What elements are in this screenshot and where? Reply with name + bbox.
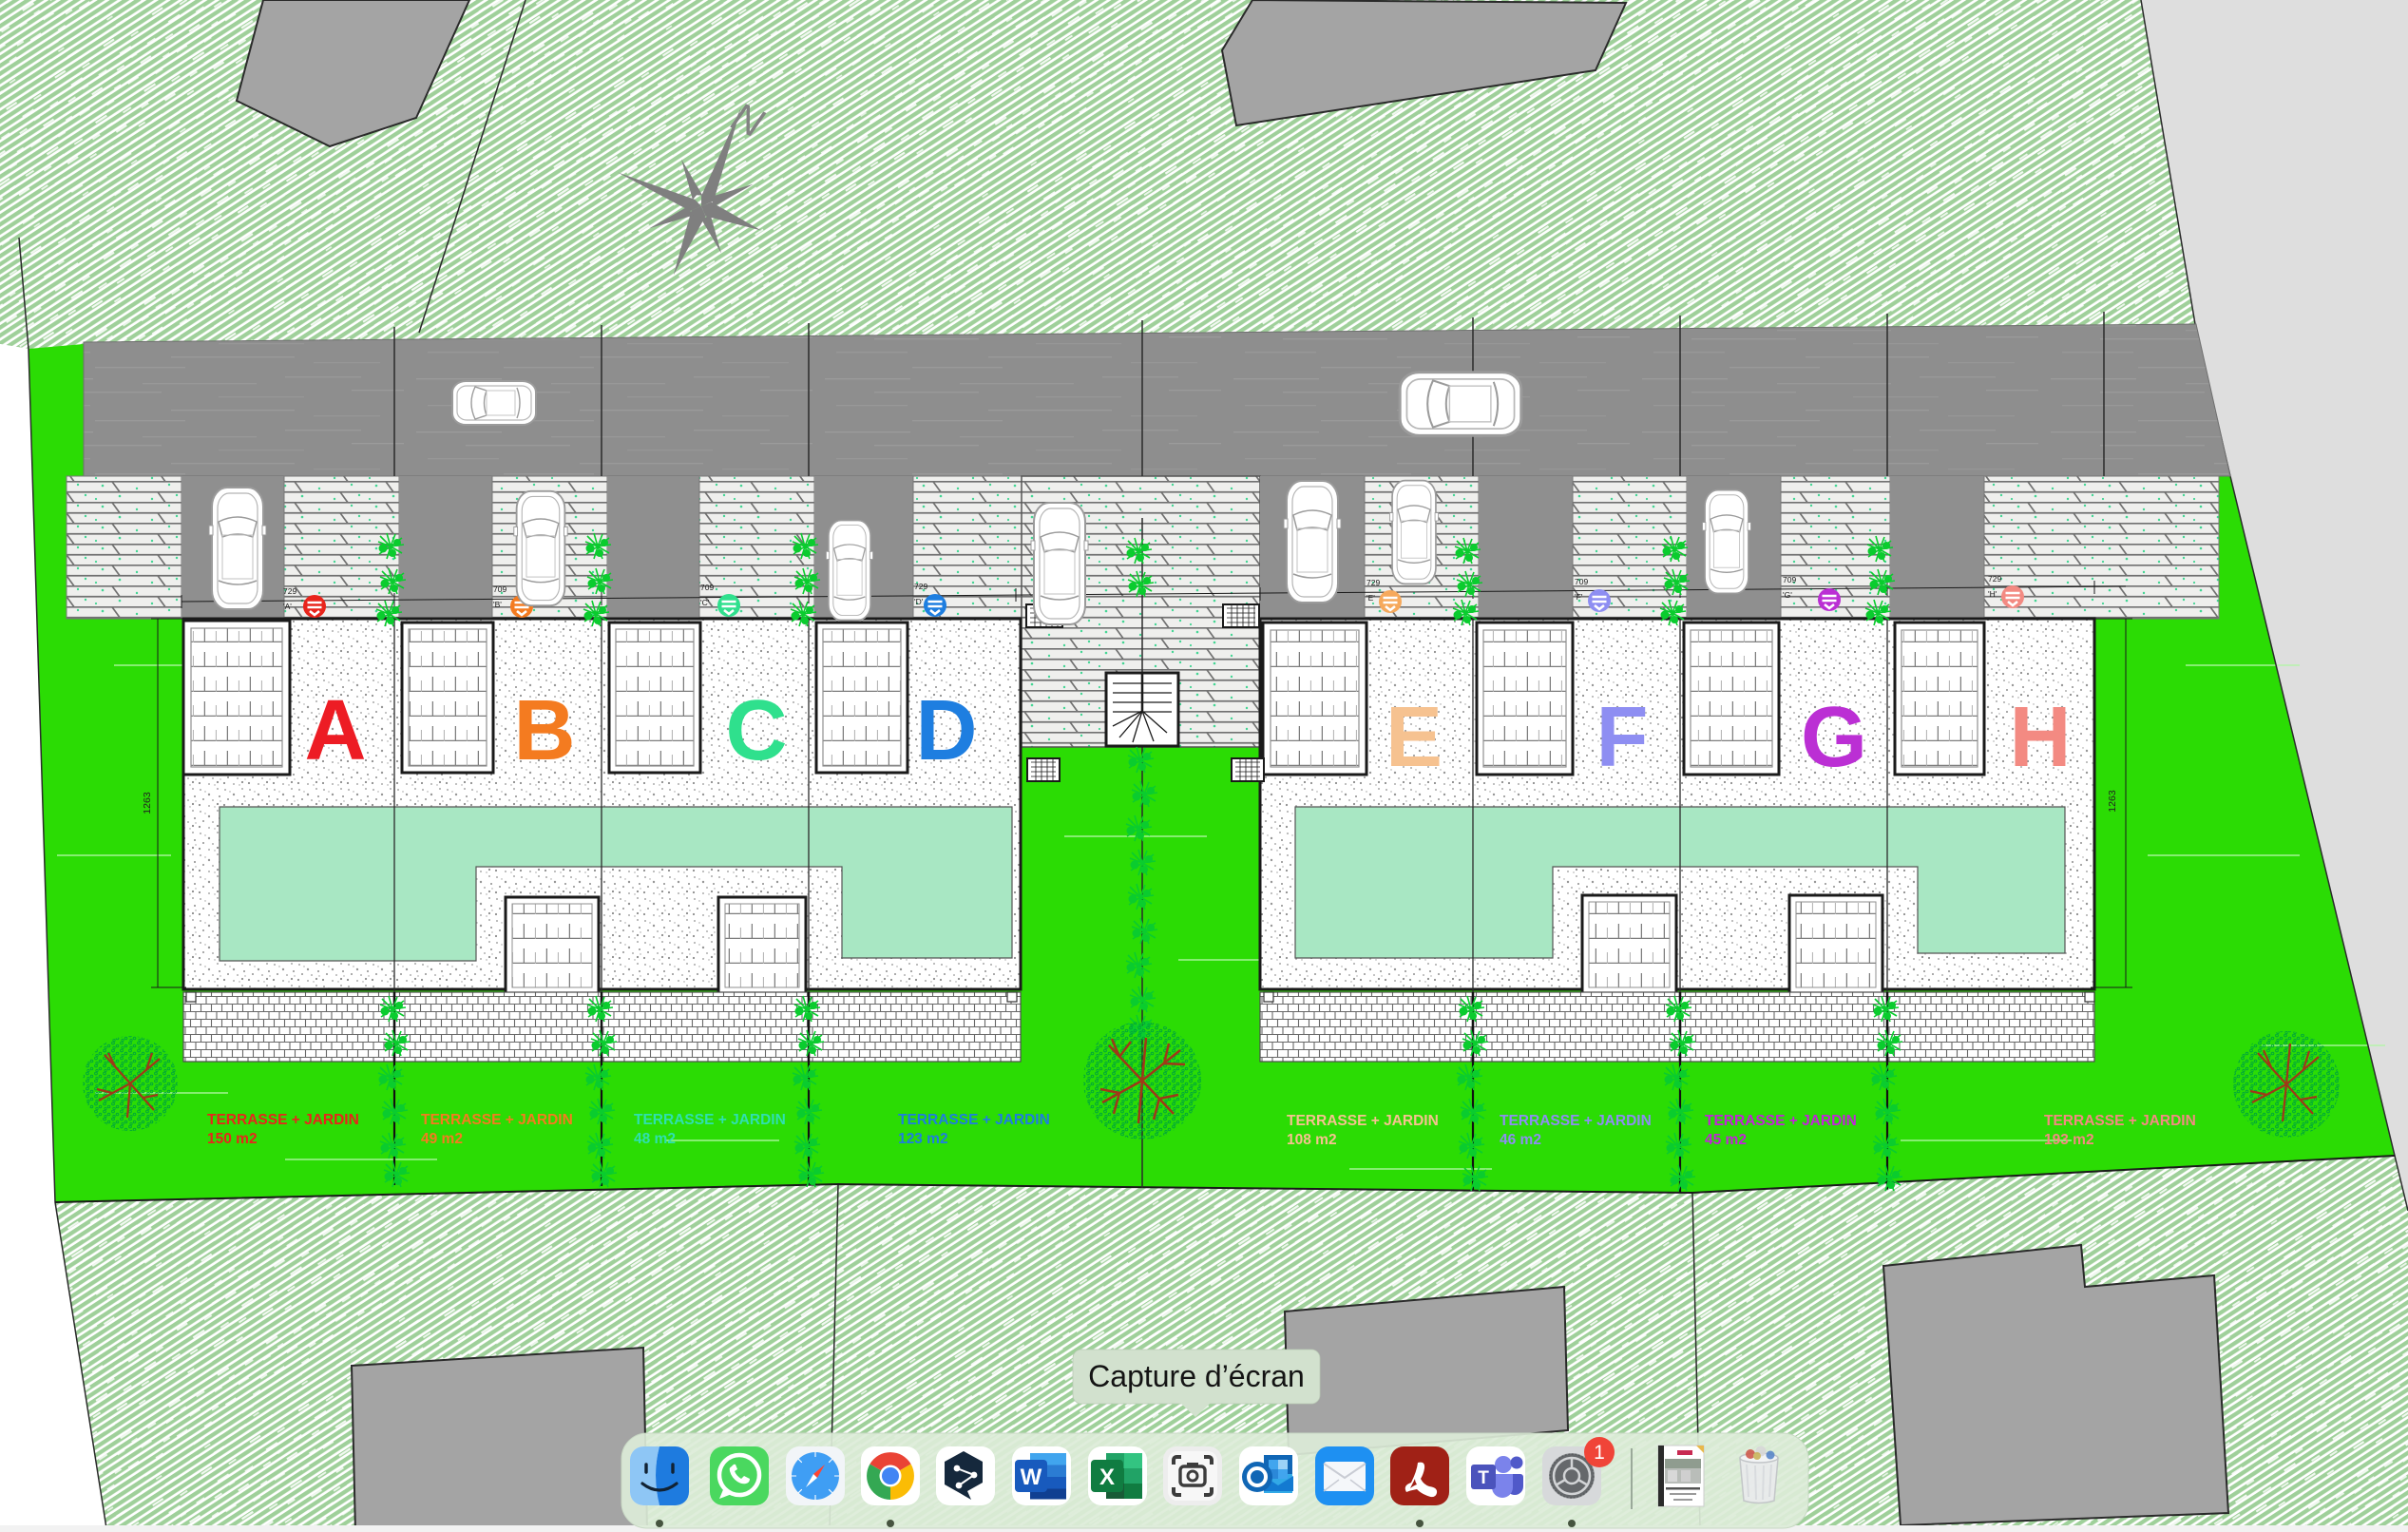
svg-text:B: B <box>514 683 576 778</box>
svg-text:709: 709 <box>700 583 714 592</box>
svg-text:'C': 'C' <box>700 598 710 607</box>
svg-text:TERRASSE + JARDIN: TERRASSE + JARDIN <box>898 1112 1050 1128</box>
svg-text:729: 729 <box>1988 574 2001 584</box>
svg-text:709: 709 <box>1575 577 1588 586</box>
svg-text:TERRASSE + JARDIN: TERRASSE + JARDIN <box>1500 1113 1652 1129</box>
svg-text:TERRASSE + JARDIN: TERRASSE + JARDIN <box>634 1112 786 1128</box>
svg-text:E: E <box>1386 690 1443 785</box>
svg-text:TERRASSE + JARDIN: TERRASSE + JARDIN <box>421 1112 573 1128</box>
svg-text:45 m2: 45 m2 <box>1705 1132 1747 1148</box>
svg-text:X: X <box>1099 1465 1115 1490</box>
svg-text:W: W <box>1021 1465 1042 1490</box>
svg-text:TERRASSE + JARDIN: TERRASSE + JARDIN <box>1705 1113 1857 1129</box>
svg-text:'D': 'D' <box>914 597 924 606</box>
svg-text:709: 709 <box>493 584 506 594</box>
svg-text:49 m2: 49 m2 <box>421 1131 463 1147</box>
svg-text:48 m2: 48 m2 <box>634 1131 676 1147</box>
svg-text:G: G <box>1801 690 1867 785</box>
svg-text:123 m2: 123 m2 <box>898 1131 948 1147</box>
svg-text:Capture d’écran: Capture d’écran <box>1088 1359 1305 1393</box>
svg-text:1263: 1263 <box>2107 790 2118 813</box>
svg-text:709: 709 <box>1783 575 1796 584</box>
svg-text:150 m2: 150 m2 <box>207 1131 258 1147</box>
svg-text:108 m2: 108 m2 <box>1287 1132 1337 1148</box>
svg-text:'H': 'H' <box>1988 589 1997 599</box>
svg-text:729: 729 <box>914 582 927 591</box>
svg-text:'A': 'A' <box>283 602 292 611</box>
svg-text:'F': 'F' <box>1575 592 1583 602</box>
svg-text:F: F <box>1596 690 1649 785</box>
svg-text:H: H <box>2010 690 2072 785</box>
svg-text:TERRASSE + JARDIN: TERRASSE + JARDIN <box>2044 1113 2196 1129</box>
svg-text:'B': 'B' <box>493 600 502 609</box>
svg-text:1263: 1263 <box>142 792 153 814</box>
svg-text:TERRASSE + JARDIN: TERRASSE + JARDIN <box>1287 1113 1439 1129</box>
svg-text:T: T <box>1478 1468 1489 1488</box>
svg-text:729: 729 <box>283 586 296 596</box>
svg-text:D: D <box>916 683 978 778</box>
svg-text:729: 729 <box>1366 578 1380 587</box>
svg-text:TERRASSE + JARDIN: TERRASSE + JARDIN <box>207 1112 359 1128</box>
svg-text:193 m2: 193 m2 <box>2044 1132 2094 1148</box>
svg-text:46 m2: 46 m2 <box>1500 1132 1541 1148</box>
svg-text:'G': 'G' <box>1783 590 1792 600</box>
svg-text:A: A <box>305 683 367 778</box>
svg-text:1: 1 <box>1594 1442 1605 1464</box>
svg-text:'E': 'E' <box>1366 593 1375 603</box>
svg-text:C: C <box>726 683 788 778</box>
